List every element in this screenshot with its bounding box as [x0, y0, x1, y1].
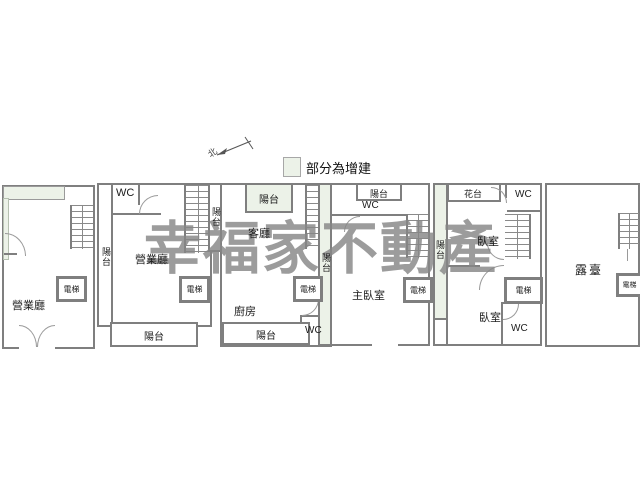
- p4-balcony-top-label: 陽台: [370, 187, 388, 200]
- p2-elevator-label: 電梯: [187, 284, 203, 295]
- p5-left-wall-lower: [446, 316, 448, 344]
- p4-elevator-label: 電梯: [410, 285, 426, 296]
- plan-1f: 電梯 營業廳: [2, 185, 95, 349]
- p6-terrace-label: 露臺: [575, 261, 603, 278]
- p2-balcony-left-wall: [111, 185, 113, 325]
- p3-balcony-left-label: 陽台: [211, 207, 220, 227]
- p4-balcony-top: 陽台: [356, 183, 402, 201]
- p3-balcony-top-label: 陽台: [259, 191, 279, 206]
- legend-label: 部分為增建: [306, 158, 371, 177]
- legend: 部分為增建: [283, 157, 371, 177]
- p4-door-opening: [372, 344, 398, 346]
- p5-elevator: 電梯: [504, 277, 543, 304]
- legend-addition-swatch: [283, 157, 301, 177]
- p1-double-door-right: [37, 325, 55, 347]
- p2-hall-label: 營業廳: [135, 251, 168, 267]
- p1-addition-strip-top: [3, 186, 65, 200]
- p5-bed-upper-label: 臥室: [477, 233, 499, 249]
- p1-double-door-left: [19, 325, 37, 347]
- p4-balcony-left-label: 陽台: [321, 253, 330, 273]
- p2-wc-label: WC: [116, 187, 134, 199]
- p2-balcony-bottom-label: 陽台: [144, 328, 164, 343]
- p4-elevator: 電梯: [403, 277, 433, 303]
- p5-stairs: [505, 214, 531, 259]
- p5-bed-lower-label: 臥室: [479, 309, 501, 325]
- p4-master-label: 主臥室: [352, 287, 385, 303]
- p1-hall-label: 營業廳: [12, 297, 45, 313]
- p2-wc-wall-right: [138, 185, 140, 205]
- p5-elevator-label: 電梯: [516, 285, 532, 296]
- p6-stairs-rail: [627, 249, 628, 261]
- p2-balcony-left-label: 陽台: [101, 247, 110, 267]
- p5-wctop-label: WC: [515, 189, 532, 200]
- svg-text:北: 北: [206, 146, 219, 159]
- p5-balcony-left-label: 陽台: [435, 240, 444, 260]
- p3-living-label: 客廳: [248, 225, 270, 241]
- p3-balcony-bottom: 陽台: [222, 322, 310, 345]
- p1-door-opening: [19, 347, 55, 349]
- p5-wcbot-label: WC: [511, 323, 528, 334]
- p5-flower-label: 花台: [464, 187, 482, 200]
- p3-balcony-bottom-label: 陽台: [256, 327, 276, 342]
- north-arrow-icon: 北: [203, 133, 259, 165]
- p6-stairs: [618, 213, 639, 249]
- p4-wc-label: WC: [362, 200, 379, 211]
- p6-elevator-label: 電梯: [623, 280, 637, 290]
- plan-6f: 露臺 電梯: [545, 183, 640, 347]
- p5-wctop-wall-bottom: [507, 210, 540, 212]
- p1-elevator-label: 電梯: [64, 284, 80, 295]
- p2-balcony-bottom: 陽台: [110, 322, 198, 347]
- p3-kitchen-label: 廚房: [234, 303, 256, 319]
- p3-elevator: 電梯: [293, 276, 323, 302]
- p3-wc-label: WC: [305, 325, 322, 336]
- p3-elevator-label: 電梯: [300, 284, 316, 295]
- p1-elevator: 電梯: [56, 276, 87, 302]
- p1-wall-stub: [4, 253, 17, 255]
- p5-wcbot-door-arc: [503, 304, 519, 320]
- floorplan-canvas: 北 部分為增建 幸福家不動產 電梯 營業廳 陽台 WC 電梯 營業廳: [0, 0, 640, 480]
- north-arrow: 北: [203, 133, 259, 170]
- p1-stairs: [70, 205, 93, 249]
- p2-elevator: 電梯: [179, 276, 210, 303]
- p6-elevator: 電梯: [616, 273, 640, 297]
